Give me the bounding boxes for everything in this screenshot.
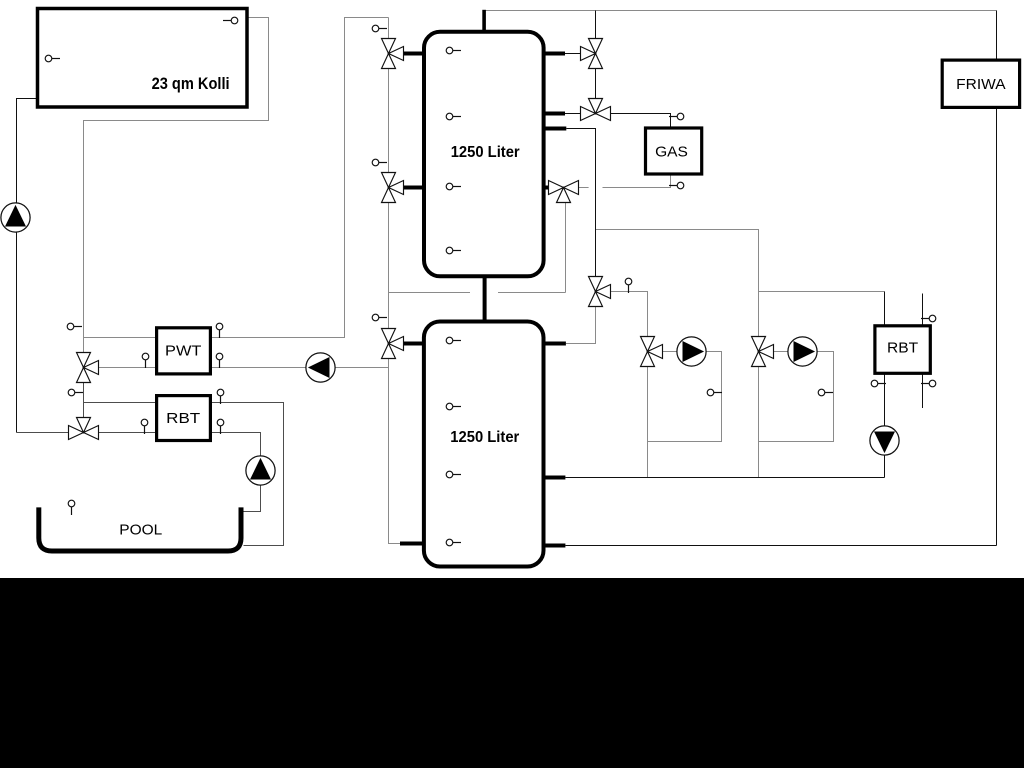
svg-text:1250 Liter: 1250 Liter: [451, 144, 520, 161]
svg-text:FRIWA: FRIWA: [956, 76, 1005, 93]
svg-text:GAS: GAS: [655, 143, 688, 160]
svg-text:POOL: POOL: [119, 521, 162, 538]
svg-text:1250 Liter: 1250 Liter: [450, 429, 519, 446]
svg-text:RBT: RBT: [166, 410, 200, 427]
svg-text:23 qm Kolli: 23 qm Kolli: [152, 74, 230, 93]
svg-text:RBT: RBT: [887, 340, 918, 357]
svg-text:PWT: PWT: [165, 343, 201, 360]
